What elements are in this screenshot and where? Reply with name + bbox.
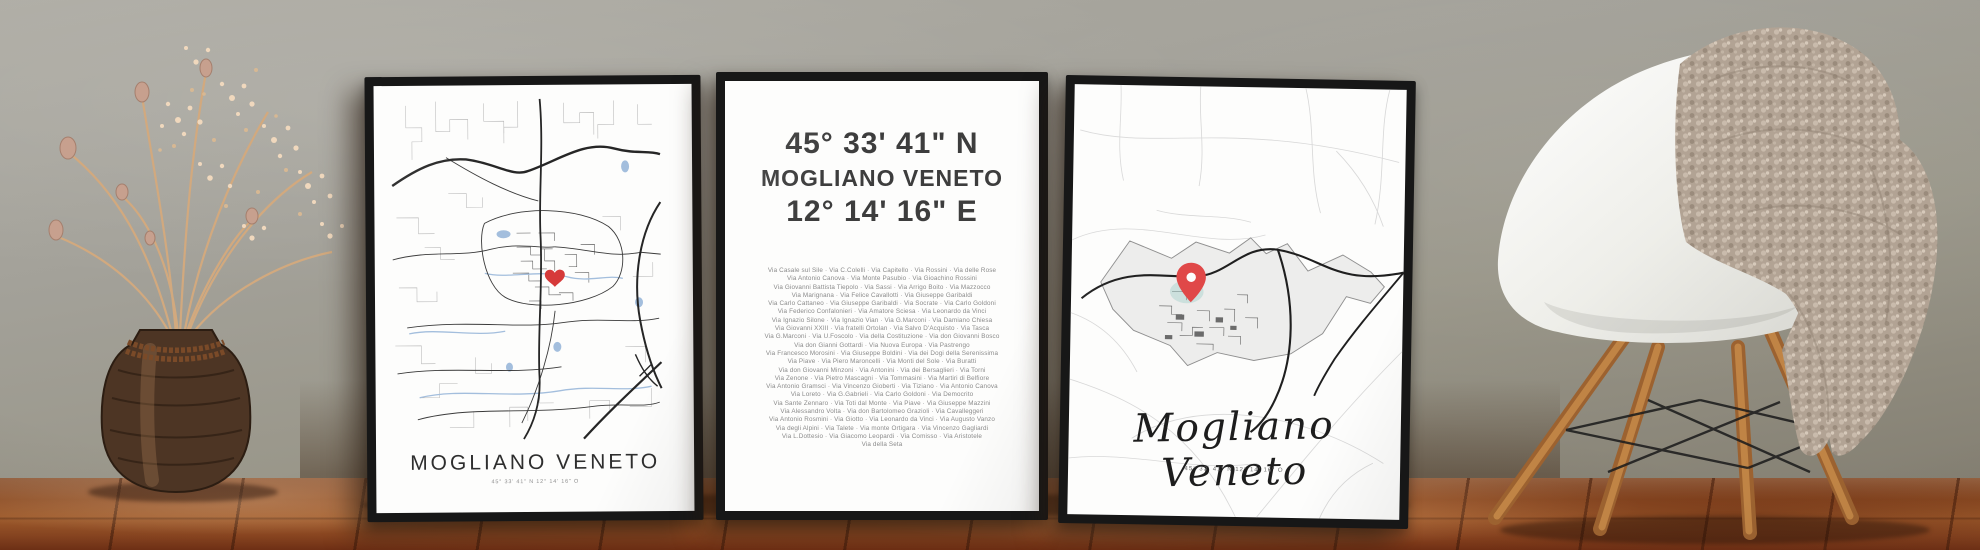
coordinates-heading: 45° 33' 41" N MOGLIANO VENETO 12° 14' 16… [725, 125, 1039, 231]
dried-flower-vase [0, 0, 380, 550]
lakes [496, 160, 643, 372]
rustic-vase [102, 330, 251, 492]
street-line: Via don Gianni Gottardi · Via Nuova Euro… [743, 342, 1021, 350]
city-map-left [388, 96, 663, 441]
street-line: Via Federico Confalonieri · Via Amatore … [743, 308, 1021, 316]
street-line: Via Giovanni Battista Tiepolo · Via Sass… [743, 284, 1021, 292]
street-line: Via Alessandro Volta · Via don Bartolome… [743, 408, 1021, 416]
poster-left-coordinates: 45° 33' 41" N 12° 14' 16" O [376, 478, 694, 486]
poster-middle-typography: 45° 33' 41" N MOGLIANO VENETO 12° 14' 16… [716, 72, 1048, 520]
poster-left-map: MOGLIANO VENETO 45° 33' 41" N 12° 14' 16… [364, 75, 703, 522]
street-line: Via Zenone · Via Pietro Mascagni · Via T… [743, 375, 1021, 383]
street-line: Via degli Alpini · Via Talete · Via mont… [743, 425, 1021, 433]
street-line: Via Francesco Morosini · Via Giuseppe Bo… [743, 350, 1021, 358]
street-line: Via Marignana · Via Felice Cavallotti · … [743, 292, 1021, 300]
street-line: Via Antonio Canova · Via Monte Pasubio ·… [743, 275, 1021, 283]
rivers [409, 272, 652, 398]
street-name-list: Via Casale sul Sile · Via C.Colelli · Vi… [743, 267, 1021, 450]
street-line: Via G.Marconi · Via U.Foscolo · Via dell… [743, 333, 1021, 341]
eames-chair [1448, 2, 1980, 548]
street-line: Via Ignazio Silone · Via Ignazio Vian · … [743, 317, 1021, 325]
poster-left-title: MOGLIANO VENETO [376, 450, 694, 476]
town-center-streets [513, 233, 596, 310]
latitude-line: 45° 33' 41" N [725, 125, 1039, 163]
street-line: Via Antonio Rosmini · Via Giotto · Via L… [743, 416, 1021, 424]
poppy-seed-pods [49, 59, 258, 245]
poster-right-map: Mogliano Veneto 45° 33' 41" N 12° 14' 16… [1058, 75, 1416, 529]
city-name-line: MOGLIANO VENETO [725, 163, 1039, 193]
map-heart-marker [545, 270, 565, 287]
street-line: Via della Seta [743, 441, 1021, 449]
secondary-roads [392, 156, 662, 424]
street-line: Via Piave · Via Piero Maroncelli · Via M… [743, 358, 1021, 366]
street-line: Via L.Dottesio · Via Giacomo Leopardi · … [743, 433, 1021, 441]
knit-blanket [1675, 27, 1937, 455]
street-line: Via Loreto · Via G.Gabrieli · Via Carlo … [743, 391, 1021, 399]
longitude-line: 12° 14' 16" E [725, 193, 1039, 231]
street-line: Via Carlo Cattaneo · Via Giuseppe Gariba… [743, 300, 1021, 308]
street-line: Via Antonio Gramsci · Via Vincenzo Giobe… [743, 383, 1021, 391]
room-photo: MOGLIANO VENETO 45° 33' 41" N 12° 14' 16… [0, 0, 1980, 550]
poster-right-title: Mogliano Veneto [1068, 402, 1402, 498]
vase-highlight [147, 350, 152, 480]
street-line: Via Casale sul Sile · Via C.Colelli · Vi… [743, 267, 1021, 275]
street-line: Via don Giovanni Minzoni · Via Antonini … [743, 367, 1021, 375]
flower-stems [56, 72, 332, 334]
street-line: Via Sante Zennaro · Via Toti dal Monte ·… [743, 400, 1021, 408]
street-line: Via Giovanni XXIII · Via fratelli Ortola… [743, 325, 1021, 333]
